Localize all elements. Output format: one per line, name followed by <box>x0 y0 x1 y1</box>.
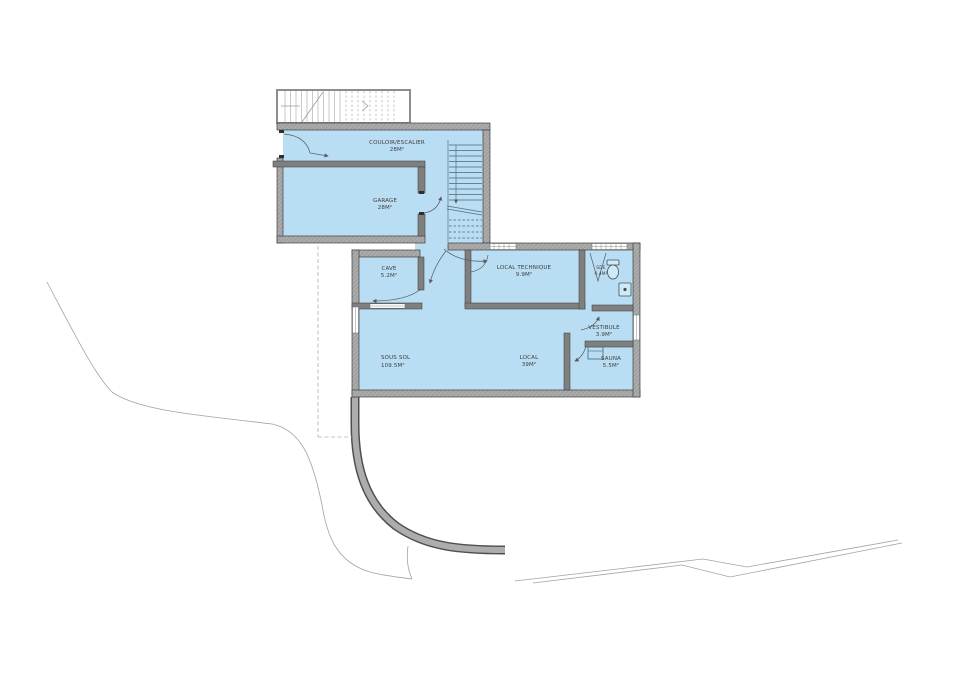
room-area-local: 39M² <box>522 361 537 368</box>
wall-local-sauna <box>564 333 570 390</box>
wall-garage-left <box>277 158 283 243</box>
driveway-retaining-wall <box>355 397 505 550</box>
wall-garage-right-a <box>418 167 425 193</box>
wall-garage-right-b <box>418 214 425 236</box>
wall-lower-bottom <box>352 390 640 397</box>
window-left-wall <box>353 307 359 333</box>
room-area-sde: 4.4M² <box>594 271 607 277</box>
room-label-vestibule: VESTIBULE <box>588 325 620 331</box>
wall-garage-bottom <box>277 236 425 243</box>
wall-lt-right <box>579 250 585 309</box>
projection-dashed-lines <box>318 246 352 437</box>
window-cave-bottom <box>370 304 405 308</box>
room-label-sauna: SAUNA <box>601 356 621 362</box>
upper-level-floor <box>283 130 483 243</box>
window-top-landing <box>490 244 516 250</box>
wall-vestibule-sauna <box>585 341 633 347</box>
wall-garage-top <box>273 161 425 167</box>
wall-sde-bottom <box>592 305 633 311</box>
wall-upper-right <box>483 130 490 243</box>
contour-line-bottom-upper <box>515 540 898 581</box>
room-label-cave: CAVE <box>381 266 396 272</box>
window-sde-top <box>592 244 627 250</box>
contour-line-branch <box>407 546 412 579</box>
lower-level-floor <box>359 250 633 390</box>
total-area: 109.5M² <box>381 362 405 369</box>
room-label-local-technique: LOCAL TECHNIQUE <box>497 265 552 271</box>
total-label: SOUS SOL <box>381 355 411 361</box>
room-area-sauna: 5.5M² <box>603 362 619 369</box>
wall-cave-top <box>352 250 420 257</box>
toilet-icon <box>607 260 619 279</box>
room-area-vestibule: 3.9M² <box>596 331 612 338</box>
room-area-cave: 5.2M² <box>381 272 397 279</box>
wall-lt-bottom <box>465 303 585 309</box>
floor-plan-canvas: COULOIR/ESCALIER 28M² GARAGE 28M² CAVE 5… <box>0 0 960 678</box>
room-area-local-technique: 9.9M² <box>516 271 532 278</box>
room-label-couloir: COULOIR/ESCALIER <box>369 140 425 146</box>
room-area-garage: 28M² <box>378 204 393 211</box>
window-vestibule-right <box>634 315 640 340</box>
room-label-garage: GARAGE <box>373 198 397 204</box>
wall-cave-right <box>418 257 424 290</box>
exterior-stair <box>277 90 410 123</box>
floor-plan-drawing: COULOIR/ESCALIER 28M² GARAGE 28M² CAVE 5… <box>0 0 960 678</box>
room-area-couloir: 28M² <box>390 146 405 153</box>
room-label-local: LOCAL <box>520 355 539 361</box>
room-label-sde: SDE <box>596 265 605 271</box>
wall-lt-left <box>465 250 471 307</box>
wall-upper-top <box>277 123 490 130</box>
washbasin-icon <box>619 283 631 296</box>
